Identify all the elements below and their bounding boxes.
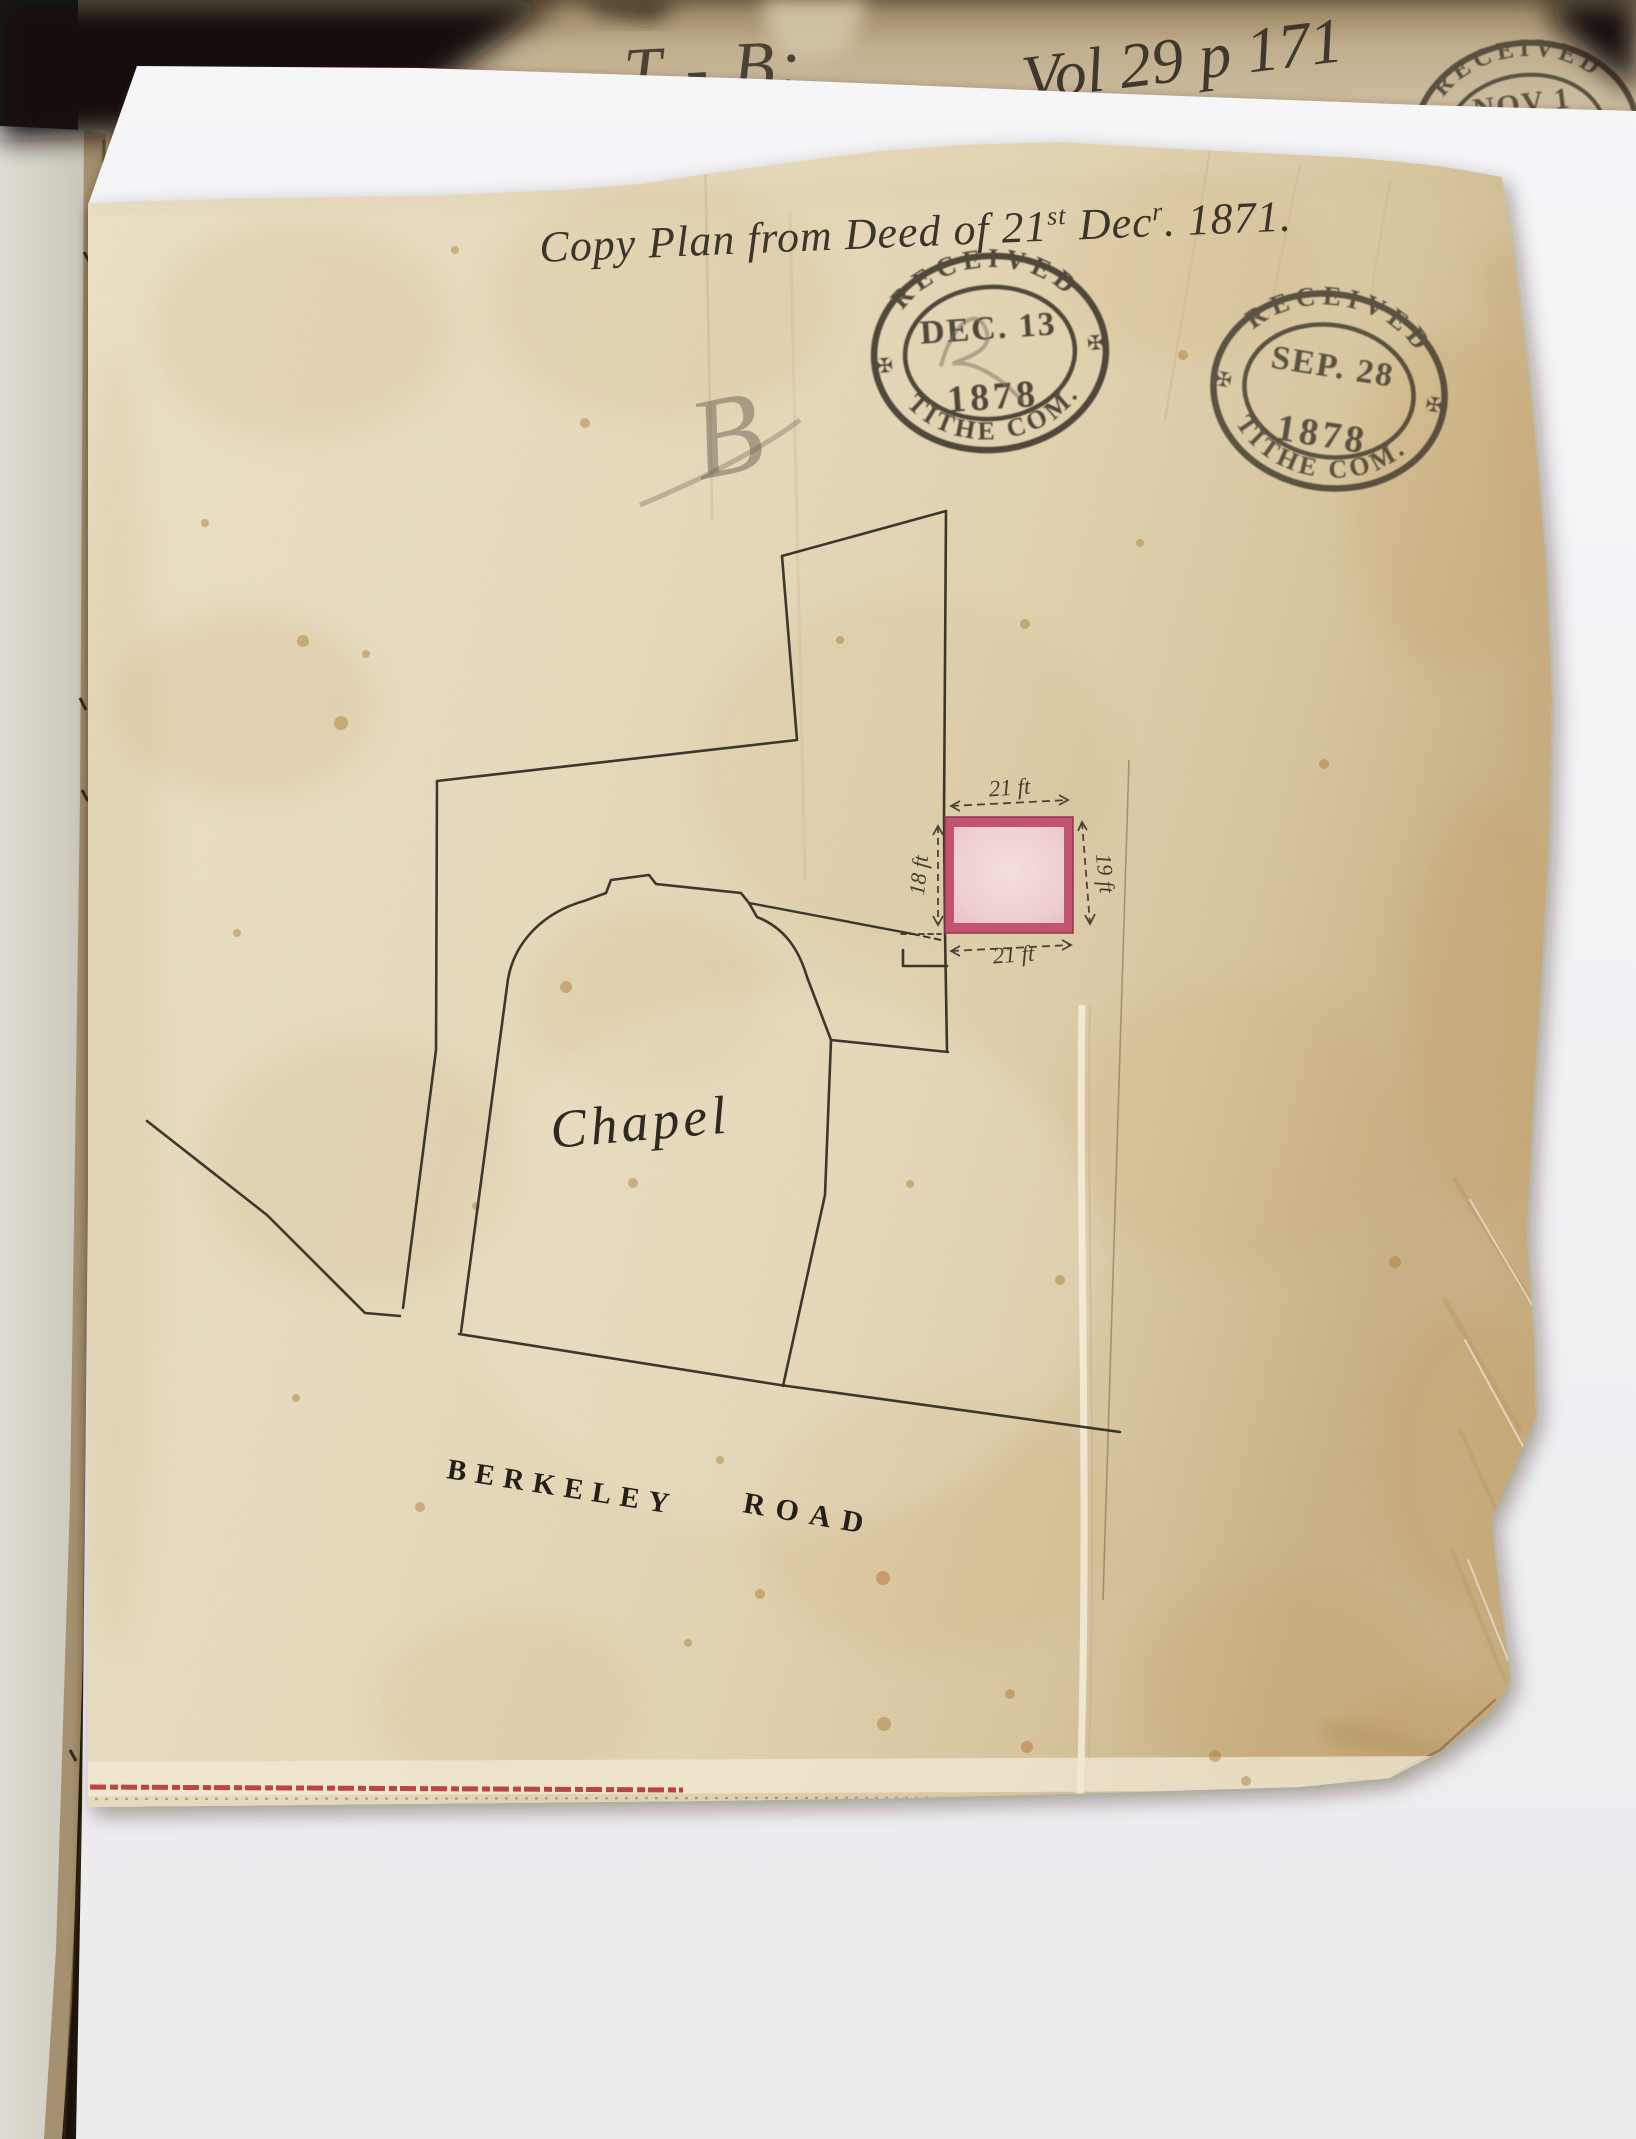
maltese-cross-icon: ✠ — [1086, 330, 1104, 355]
dim-right: 19 ft — [1091, 852, 1120, 895]
parcel — [945, 817, 1073, 933]
dim-bottom: 21 ft — [992, 941, 1036, 969]
title-superscript-st: st — [1046, 201, 1067, 231]
title-month: Dec — [1066, 197, 1154, 250]
scan-canvas: T - B: Vol 29 p 171 RECEIVED NOV 1 ✠ — [0, 0, 1636, 2139]
stamp-year: 1878 — [946, 373, 1041, 421]
maltese-cross-icon: ✠ — [875, 353, 893, 378]
scanned-archive-page: T - B: Vol 29 p 171 RECEIVED NOV 1 ✠ — [0, 0, 1636, 2139]
title-year: . 1871. — [1163, 192, 1293, 246]
dim-left: 18 ft — [904, 853, 933, 896]
dim-top: 21 ft — [988, 774, 1032, 802]
parcel-fill — [954, 827, 1064, 923]
